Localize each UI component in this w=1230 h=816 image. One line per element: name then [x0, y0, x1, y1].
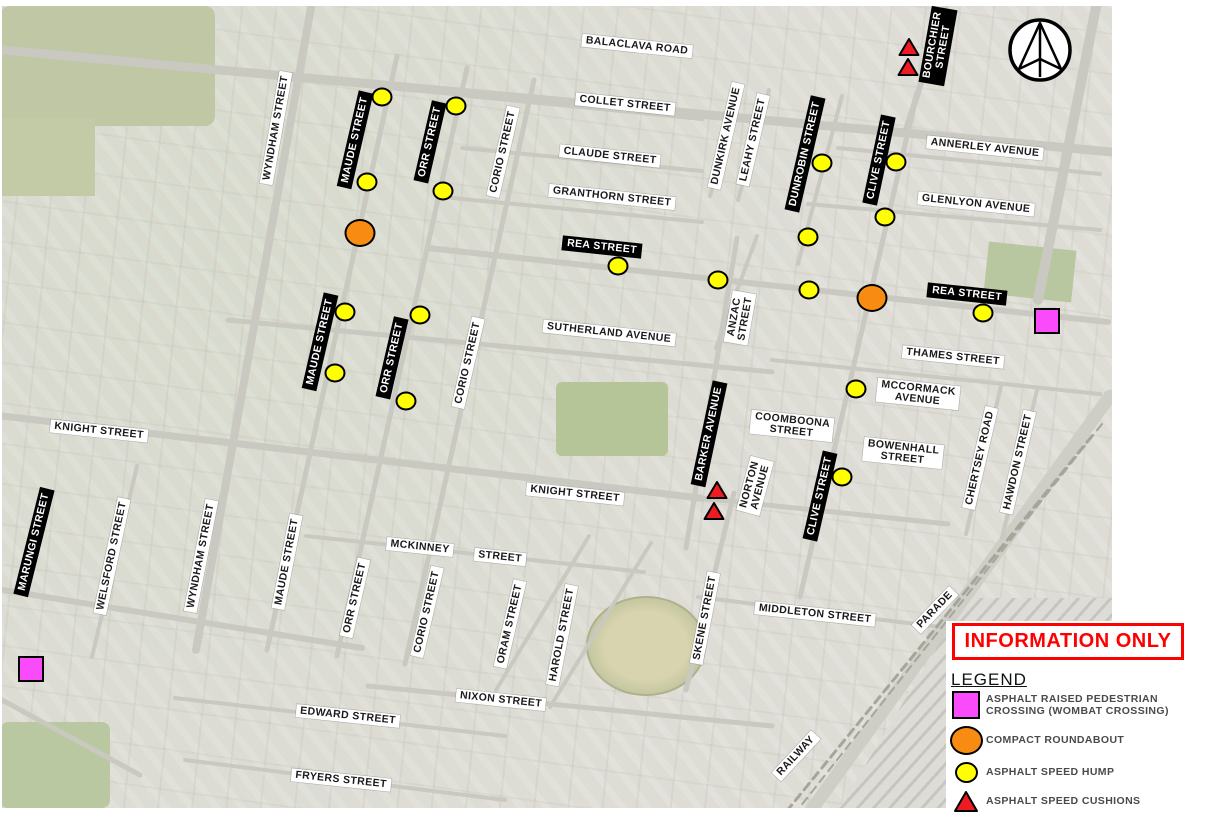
legend-item: ASPHALT SPEED CUSHIONS: [946, 790, 1230, 813]
speed-hump-icon: [946, 762, 986, 783]
north-arrow-icon: [1007, 17, 1073, 83]
compact-roundabout-icon: [946, 726, 986, 755]
legend-item: COMPACT ROUNDABOUT: [946, 726, 1230, 755]
legend-item-label: ASPHALT SPEED CUSHIONS: [986, 795, 1140, 808]
legend-item-label: ASPHALT SPEED HUMP: [986, 766, 1114, 779]
legend-panel: INFORMATION ONLY LEGEND ASPHALT RAISED P…: [946, 621, 1230, 816]
legend-item-label: ASPHALT RAISED PEDESTRIAN CROSSING (WOMB…: [986, 693, 1169, 718]
legend-item: ASPHALT SPEED HUMP: [946, 762, 1230, 783]
legend-item-label: COMPACT ROUNDABOUT: [986, 734, 1124, 747]
legend-items: ASPHALT RAISED PEDESTRIAN CROSSING (WOMB…: [946, 691, 1230, 816]
information-only-banner: INFORMATION ONLY: [952, 623, 1184, 660]
map-page: BALACLAVA ROADCOLLET STREETCLAUDE STREET…: [0, 0, 1230, 816]
legend-title: LEGEND: [951, 670, 1027, 690]
speed-cushion-icon: [946, 790, 986, 813]
wombat-crossing-icon: [946, 691, 986, 719]
legend-item: ASPHALT RAISED PEDESTRIAN CROSSING (WOMB…: [946, 691, 1230, 719]
